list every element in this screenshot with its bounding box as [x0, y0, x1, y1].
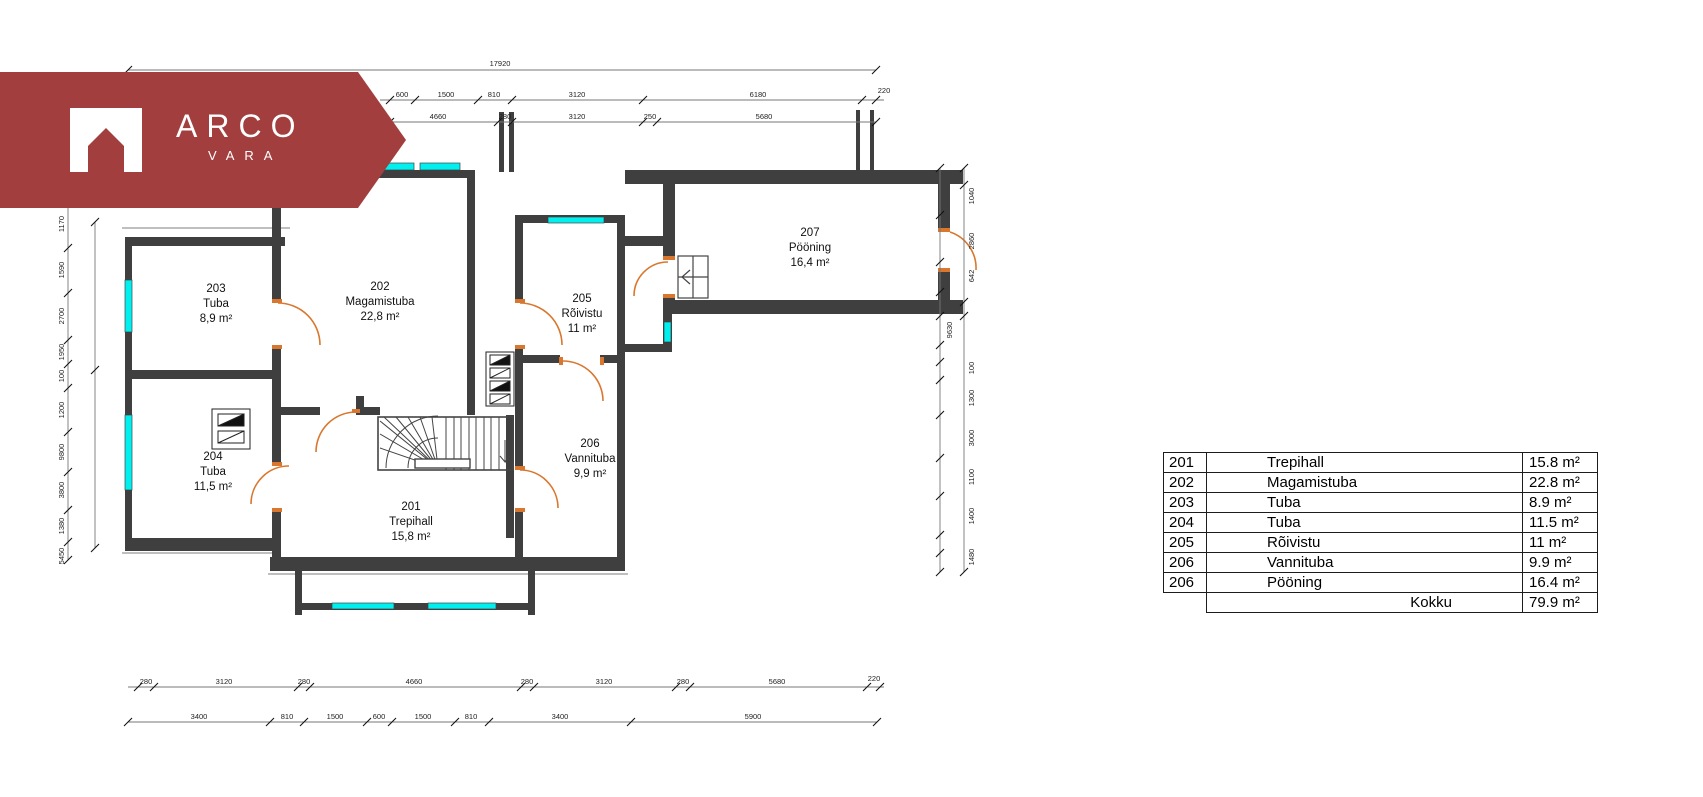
table-row: 205Rõivistu11 m² [1163, 532, 1598, 553]
table-cell-area: 9.9 m² [1522, 552, 1598, 573]
table-cell-area: 8.9 m² [1522, 492, 1598, 513]
dimension-label: 1300 [967, 390, 976, 407]
dimension-label: 1040 [967, 188, 976, 205]
dimension-label: 3120 [569, 112, 586, 121]
table-total-area: 79.9 m² [1522, 592, 1598, 613]
table-cell-number: 206 [1163, 552, 1207, 573]
page-canvas: 1792060015008103120618022046602803120250… [0, 0, 1703, 797]
dimension-label: 1950 [57, 344, 66, 361]
logo-banner: ARCO VARA [0, 68, 420, 213]
table-cell-number: 204 [1163, 512, 1207, 533]
table-row: 204Tuba11.5 m² [1163, 512, 1598, 533]
dimension-label: 600 [373, 712, 386, 721]
dimension-label: 3120 [216, 677, 233, 686]
logo-brand-text: ARCO [176, 108, 304, 145]
dimension-label: 280 [521, 677, 534, 686]
dimension-label: 220 [878, 86, 891, 95]
table-cell-area: 11 m² [1522, 532, 1598, 553]
table-total-spacer [1163, 592, 1207, 613]
dimension-label: 5900 [745, 712, 762, 721]
table-cell-area: 22.8 m² [1522, 472, 1598, 493]
dimension-label: 3120 [596, 677, 613, 686]
table-cell-number: 205 [1163, 532, 1207, 553]
dimension-label: 1200 [57, 402, 66, 419]
dimension-label: 3400 [191, 712, 208, 721]
dimension-label: 280 [677, 677, 690, 686]
table-row: 201Trepihall15.8 m² [1163, 452, 1598, 473]
table-row: 202Magamistuba22.8 m² [1163, 472, 1598, 493]
area-table-body: 201Trepihall15.8 m²202Magamistuba22.8 m²… [1163, 452, 1598, 613]
dimension-label: 1590 [57, 262, 66, 279]
table-cell-number: 202 [1163, 472, 1207, 493]
dimension-label: 3000 [967, 430, 976, 447]
table-total-row: Kokku79.9 m² [1163, 592, 1598, 613]
dimension-label: 3120 [569, 90, 586, 99]
dimension-label: 810 [281, 712, 294, 721]
dimension-label: 100 [57, 370, 66, 383]
dimension-label: 1380 [57, 518, 66, 535]
dimension-label: 3800 [57, 482, 66, 499]
doors-layer [251, 232, 976, 508]
dimension-label: 810 [488, 90, 501, 99]
table-cell-name: Magamistuba [1206, 472, 1523, 493]
table-cell-name: Rõivistu [1206, 532, 1523, 553]
staircase [378, 416, 513, 470]
dimension-label: 9800 [57, 444, 66, 461]
table-cell-number: 206 [1163, 572, 1207, 593]
dimension-label: 5680 [756, 112, 773, 121]
dimension-label: 1100 [967, 469, 976, 485]
dimension-label: 1500 [327, 712, 344, 721]
dimension-label: 17920 [490, 59, 511, 68]
dimension-label: 220 [868, 674, 881, 683]
table-total-label: Kokku [1206, 592, 1523, 613]
table-cell-name: Tuba [1206, 512, 1523, 533]
table-cell-name: Vannituba [1206, 552, 1523, 573]
logo-sub-text: VARA [208, 148, 282, 163]
area-table: 201Trepihall15.8 m²202Magamistuba22.8 m²… [1163, 452, 1598, 613]
table-cell-name: Tuba [1206, 492, 1523, 513]
dimension-label: 6180 [750, 90, 767, 99]
dimension-label: 250 [644, 112, 657, 121]
dimension-label: 4660 [430, 112, 447, 121]
dimension-label: 3400 [552, 712, 569, 721]
table-cell-area: 15.8 m² [1522, 452, 1598, 473]
dimension-label: 4660 [406, 677, 423, 686]
table-cell-area: 11.5 m² [1522, 512, 1598, 533]
dimension-label: 2860 [967, 233, 976, 250]
table-cell-name: Pööning [1206, 572, 1523, 593]
table-cell-number: 201 [1163, 452, 1207, 473]
dimension-label: 1170 [57, 216, 66, 232]
table-cell-number: 203 [1163, 492, 1207, 513]
dimension-label: 1400 [967, 508, 976, 525]
dimension-label: 1500 [438, 90, 455, 99]
eave-lines [122, 228, 628, 574]
dimension-label: 5450 [57, 548, 66, 565]
dimension-label: 810 [465, 712, 478, 721]
dimension-label: 642 [967, 270, 976, 283]
table-row: 203Tuba8.9 m² [1163, 492, 1598, 513]
table-row: 206Vannituba9.9 m² [1163, 552, 1598, 573]
attic-step-box [678, 256, 708, 298]
dimension-label: 280 [499, 112, 512, 121]
door-jambs [272, 228, 950, 512]
dimension-label: 2700 [57, 308, 66, 325]
table-row: 206Pööning16.4 m² [1163, 572, 1598, 593]
dimension-label: 280 [298, 677, 311, 686]
table-cell-name: Trepihall [1206, 452, 1523, 473]
table-cell-area: 16.4 m² [1522, 572, 1598, 593]
dimension-label: 280 [140, 677, 153, 686]
dimension-label: 1480 [967, 549, 976, 566]
dimension-label: 1500 [415, 712, 432, 721]
dimension-label: 5680 [769, 677, 786, 686]
dimension-label: 9630 [945, 322, 954, 339]
dimension-label: 100 [967, 362, 976, 375]
